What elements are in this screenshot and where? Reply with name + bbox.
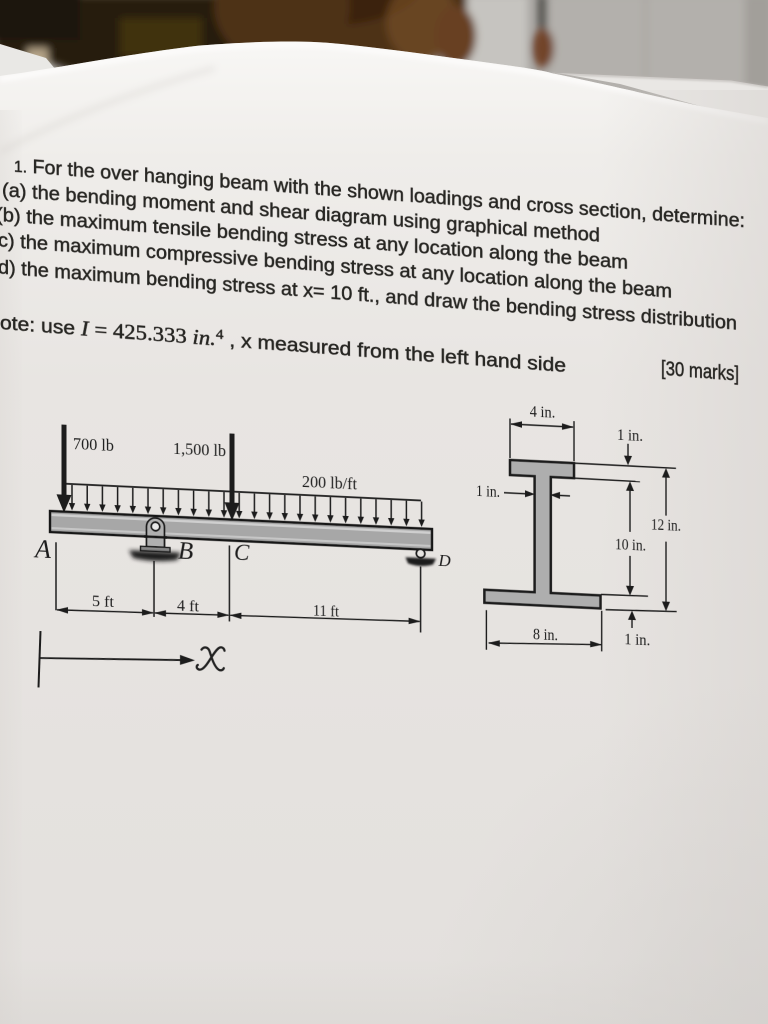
svg-text:A: A bbox=[33, 534, 51, 564]
svg-text:B: B bbox=[178, 538, 193, 566]
svg-text:10 in.: 10 in. bbox=[615, 536, 646, 555]
svg-text:4 ft: 4 ft bbox=[177, 597, 200, 615]
svg-text:5 ft: 5 ft bbox=[92, 593, 115, 611]
svg-text:4 in.: 4 in. bbox=[530, 403, 556, 421]
svg-text:700 lb: 700 lb bbox=[73, 434, 114, 455]
svg-text:8 in.: 8 in. bbox=[533, 626, 558, 644]
svg-text:1 in.: 1 in. bbox=[617, 427, 643, 445]
svg-text:D: D bbox=[438, 551, 452, 571]
svg-text:200 lb/ft: 200 lb/ft bbox=[302, 472, 357, 494]
svg-text:1,500 lb: 1,500 lb bbox=[173, 439, 226, 460]
svg-text:1 in.: 1 in. bbox=[624, 631, 650, 649]
svg-text:C: C bbox=[234, 539, 250, 566]
svg-text:11 ft: 11 ft bbox=[313, 602, 339, 620]
svg-text:12 in.: 12 in. bbox=[651, 516, 681, 534]
svg-text:1 in.: 1 in. bbox=[476, 483, 500, 501]
